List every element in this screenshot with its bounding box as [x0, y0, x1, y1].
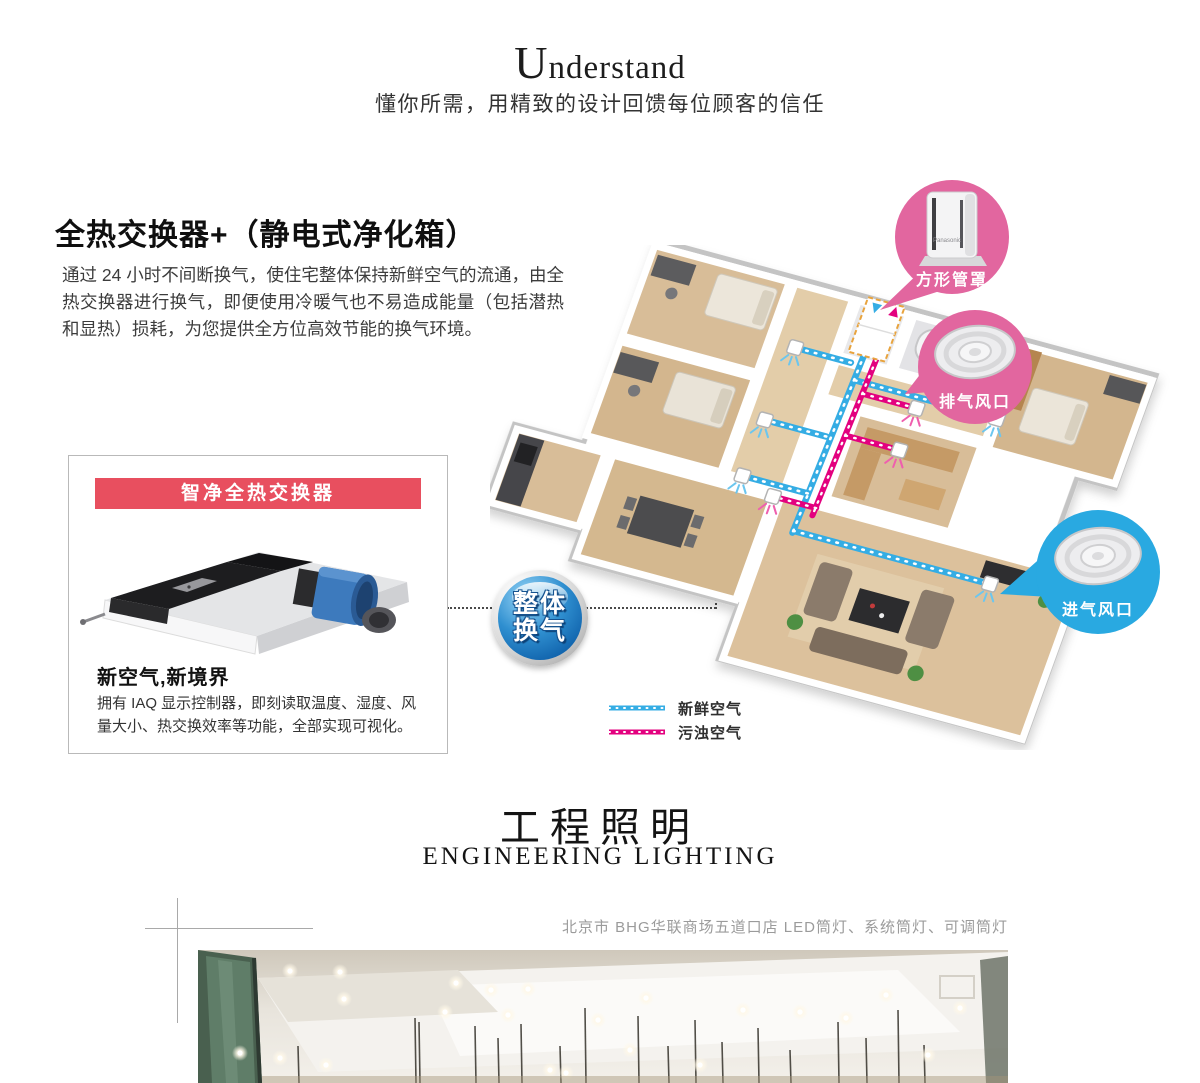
airflow-legend: 新鲜空气 污浊空气 [608, 696, 742, 744]
photo-caption: 北京市 BHG华联商场五道口店 LED筒灯、系统筒灯、可调筒灯 [562, 916, 1008, 937]
whole-house-ventilation-badge: 整体 换气 [492, 570, 588, 666]
brochure-page: Understand 懂你所需，用精致的设计回馈每位顾客的信任 全热交换器+（静… [0, 0, 1200, 1083]
callout-exhaust-vent: 排气风口 [918, 310, 1032, 424]
product-subheading: 新空气,新境界 [97, 661, 230, 690]
badge-text-line1: 整体 [513, 591, 567, 618]
lighting-title-en: ENGINEERING LIGHTING [0, 843, 1200, 871]
product-brand-text: Panasonic [933, 238, 961, 244]
badge-text-line2: 换气 [513, 618, 567, 645]
page-title: Understand [0, 36, 1200, 89]
lighting-photo [198, 950, 1008, 1083]
legend-item-polluted-air: 污浊空气 [608, 720, 742, 744]
polluted-air-line-swatch [608, 728, 666, 736]
callout-intake-vent: 进气风口 [1036, 510, 1160, 634]
product-card-banner: 智净全热交换器 [95, 478, 421, 509]
callout-label-exhaust-vent: 排气风口 [918, 388, 1032, 412]
registration-mark-vertical [177, 898, 178, 1023]
badge-circle: 整体 换气 [498, 576, 582, 660]
legend-label-polluted-air: 污浊空气 [678, 722, 742, 743]
callout-square-duct-cover: Panasonic 方形管罩 [895, 180, 1009, 294]
page-subtitle: 懂你所需，用精致的设计回馈每位顾客的信任 [0, 88, 1200, 118]
legend-label-fresh-air: 新鲜空气 [678, 698, 742, 719]
heat-exchanger-product-image [77, 538, 433, 658]
fresh-air-line-swatch [608, 704, 666, 712]
product-card: 智净全热交换器 新空气,新境界 拥有 IAQ 显示控制器，即刻读 [68, 455, 448, 754]
ventilation-body: 通过 24 小时不间断换气，使住宅整体保持新鲜空气的流通，由全热交换器进行换气，… [62, 262, 564, 343]
registration-mark-horizontal [145, 928, 313, 929]
product-description: 拥有 IAQ 显示控制器，即刻读取温度、湿度、风量大小、热交换效率等功能，全部实… [97, 692, 427, 738]
ventilation-heading: 全热交换器+（静电式净化箱） [55, 210, 477, 254]
callout-label-square-duct-cover: 方形管罩 [895, 266, 1009, 290]
callout-label-intake-vent: 进气风口 [1036, 596, 1160, 620]
legend-item-fresh-air: 新鲜空气 [608, 696, 742, 720]
